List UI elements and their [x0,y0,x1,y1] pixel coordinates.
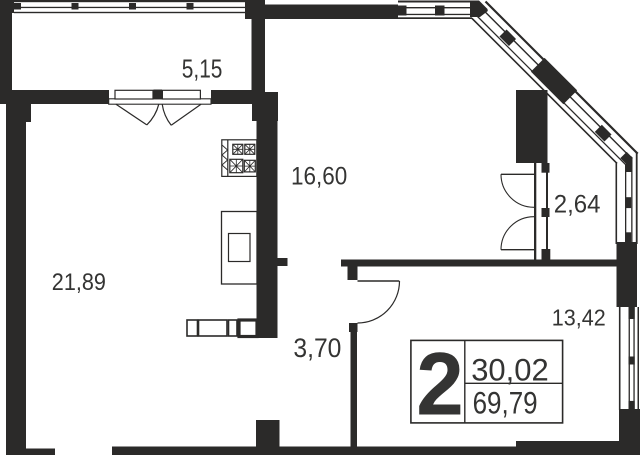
svg-text:21,89: 21,89 [52,269,106,296]
svg-text:13,42: 13,42 [552,305,606,331]
svg-text:5,15: 5,15 [182,56,223,84]
svg-text:30,02: 30,02 [471,352,549,388]
svg-text:16,60: 16,60 [291,162,347,190]
svg-text:69,79: 69,79 [473,384,538,420]
svg-text:2: 2 [416,334,464,434]
svg-text:3,70: 3,70 [293,333,341,363]
svg-text:2,64: 2,64 [554,190,601,218]
